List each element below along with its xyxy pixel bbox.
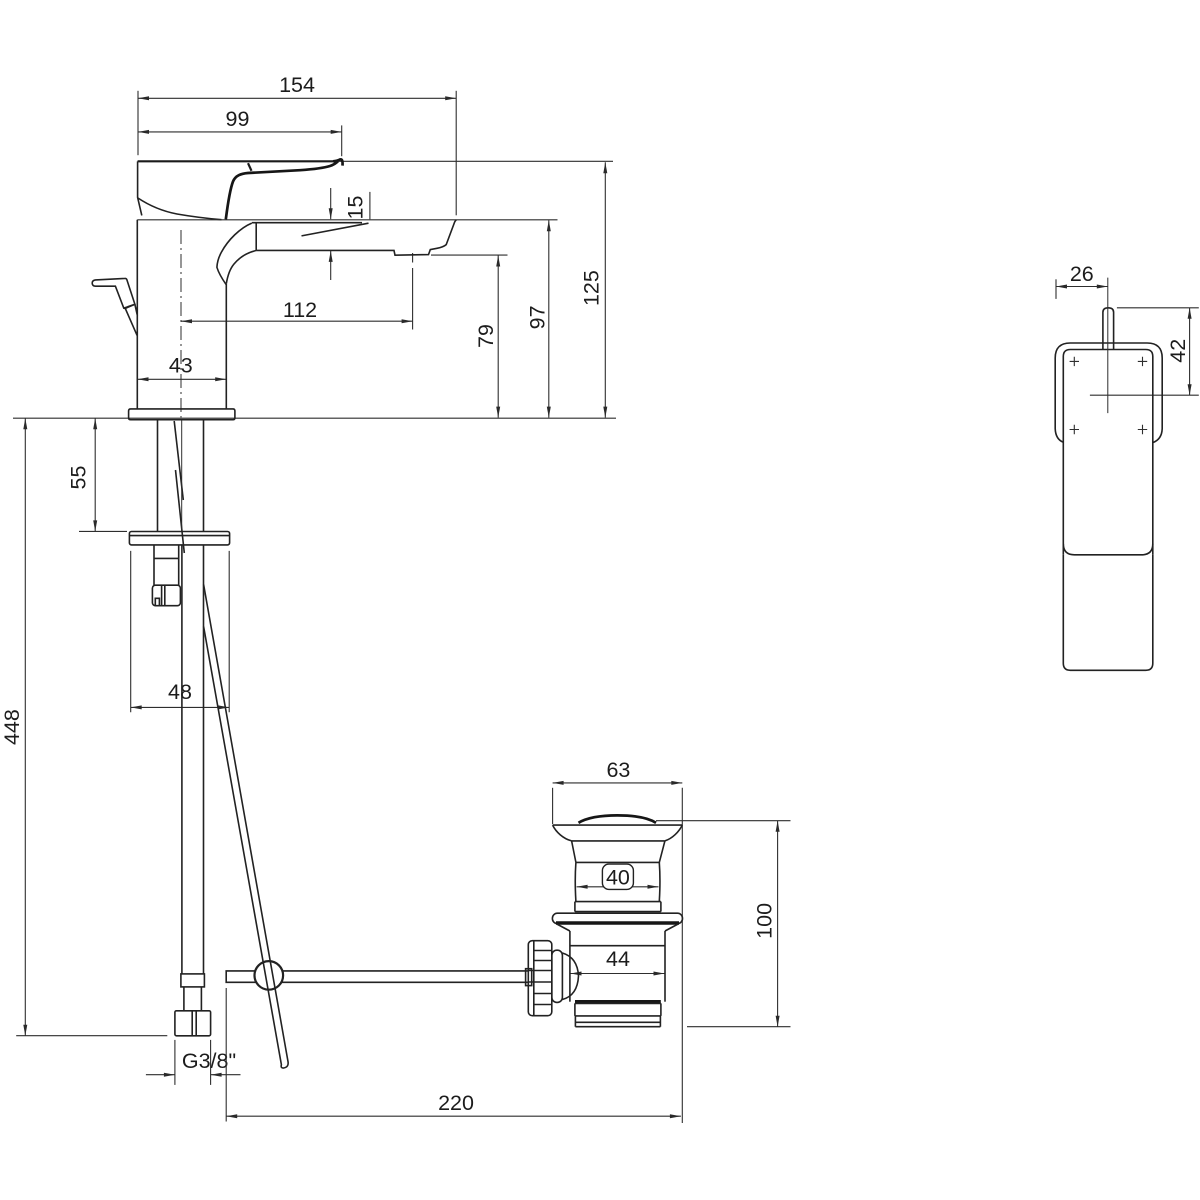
svg-text:26: 26	[1070, 262, 1094, 286]
svg-text:G3/8": G3/8"	[182, 1049, 236, 1073]
svg-text:42: 42	[1166, 339, 1190, 363]
svg-text:44: 44	[606, 947, 630, 971]
svg-text:63: 63	[606, 758, 630, 782]
svg-text:97: 97	[525, 305, 549, 329]
svg-text:40: 40	[606, 865, 630, 889]
svg-text:99: 99	[226, 107, 250, 131]
svg-text:154: 154	[279, 73, 315, 97]
svg-text:55: 55	[67, 466, 91, 490]
svg-text:448: 448	[0, 709, 24, 745]
svg-text:100: 100	[753, 903, 777, 939]
svg-text:125: 125	[580, 270, 604, 306]
svg-text:112: 112	[283, 298, 317, 322]
svg-text:220: 220	[438, 1091, 474, 1115]
svg-text:48: 48	[168, 680, 192, 704]
svg-text:15: 15	[344, 196, 368, 220]
svg-text:79: 79	[474, 324, 498, 348]
